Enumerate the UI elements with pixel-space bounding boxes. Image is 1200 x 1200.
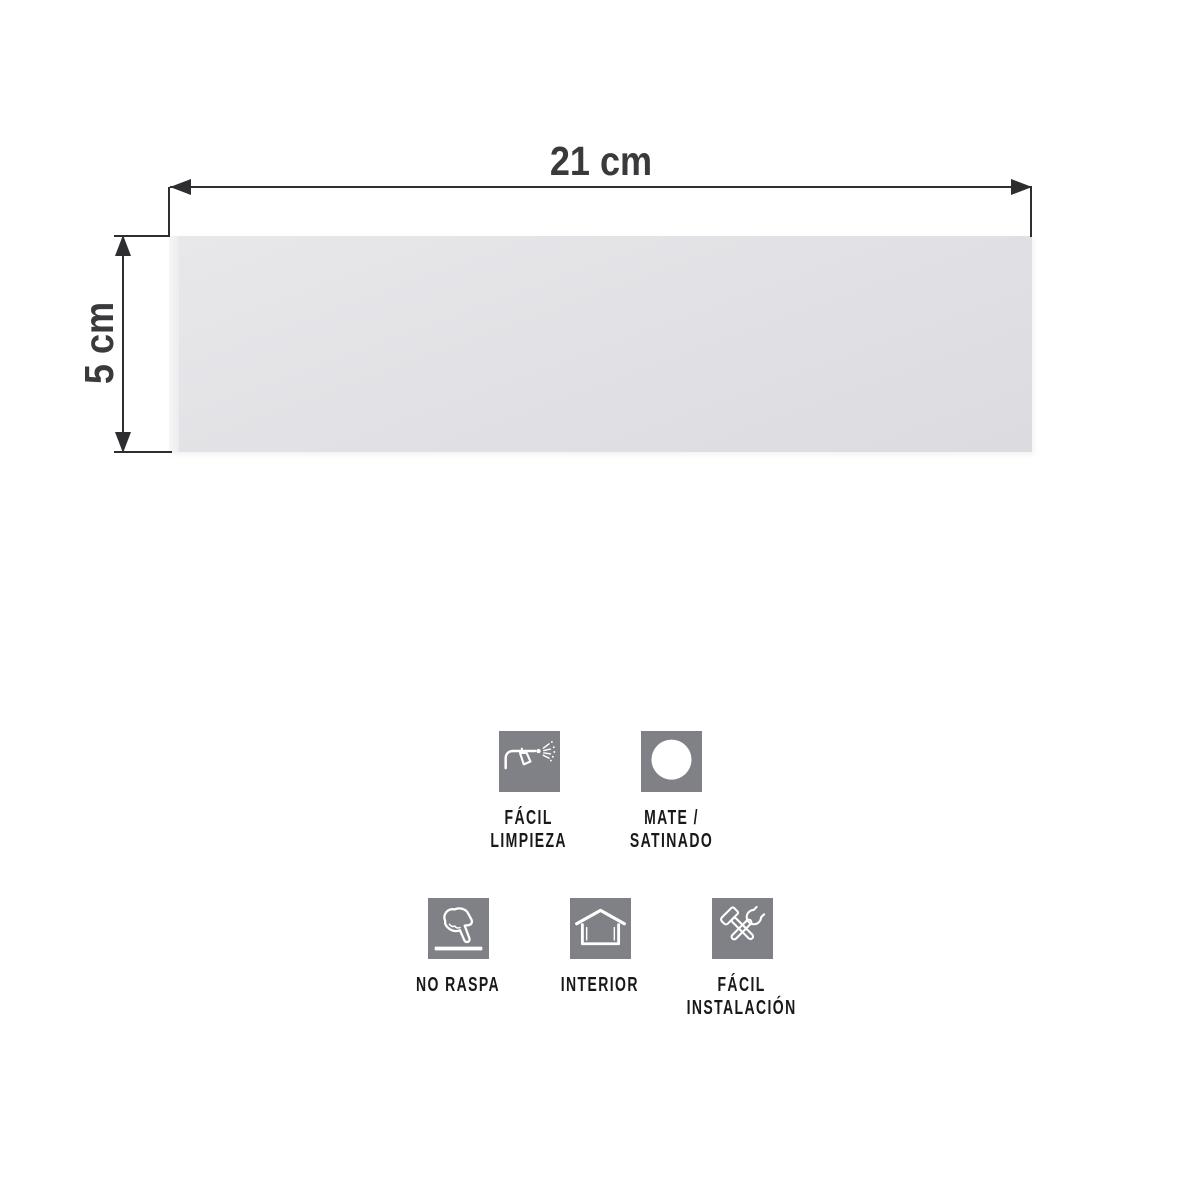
product-tile [169,236,1032,452]
house-icon [570,898,631,959]
feature-label-line: FÁCIL [491,807,568,830]
extension-tick-bottom [114,451,172,453]
matte-circle-icon [641,731,702,792]
arrow-right-icon [1011,179,1032,195]
tools-icon [712,898,773,959]
product-spec-sheet: 21 cm 5 cm [0,0,1200,1200]
feature-row-2: NO RASPA INTERIOR [0,898,1200,1020]
extension-line-right [1030,187,1032,237]
extension-tick-top [114,235,170,237]
feature-label: NO RASPA [416,974,500,997]
width-dimension-line [170,186,1032,188]
feature-label-line: NO RASPA [416,974,500,997]
feature-label: INTERIOR [561,974,639,997]
feature-label-line: INTERIOR [561,974,639,997]
spray-gun-icon [499,731,560,792]
feature-no-scratch: NO RASPA [387,898,529,1020]
height-dimension-label: 5 cm [77,290,121,396]
feature-easy-install: FÁCIL INSTALACIÓN [671,898,813,1020]
feature-matte-satin: MATE / SATINADO [600,731,742,853]
feature-interior: INTERIOR [529,898,671,1020]
feature-label-line: FÁCIL [687,974,797,997]
arrow-up-icon [115,235,131,256]
feature-label-line: SATINADO [629,830,712,853]
arrow-down-icon [115,432,131,453]
width-dimension-label: 21 cm [513,138,689,185]
feature-label-line: LIMPIEZA [491,830,568,853]
extension-line-left [168,187,170,236]
feature-label-line: INSTALACIÓN [687,997,797,1020]
feature-row-1: FÁCIL LIMPIEZA MATE / SATINADO [0,731,1200,853]
pointing-hand-icon [428,898,489,959]
arrow-left-icon [170,179,191,195]
feature-label: FÁCIL INSTALACIÓN [687,974,797,1020]
height-dimension-line [122,236,124,453]
feature-label: MATE / SATINADO [629,807,712,853]
feature-label: FÁCIL LIMPIEZA [491,807,568,853]
feature-easy-cleaning: FÁCIL LIMPIEZA [458,731,600,853]
feature-label-line: MATE / [629,807,712,830]
tile-edge-highlight [169,236,179,452]
